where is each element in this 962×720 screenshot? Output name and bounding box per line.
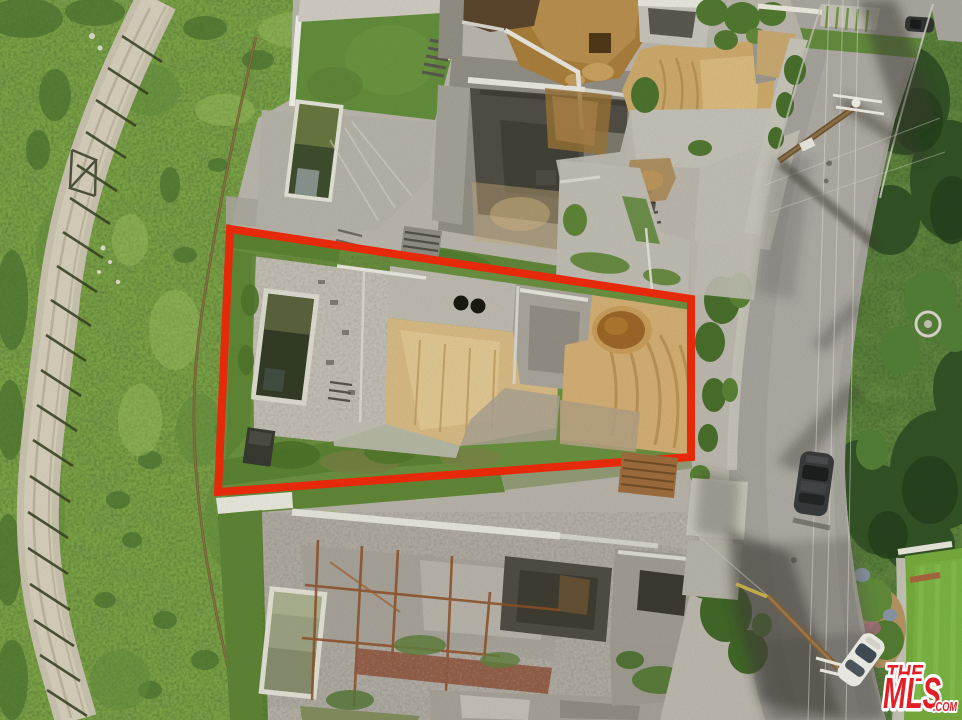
svg-text:.COM: .COM bbox=[933, 699, 958, 714]
